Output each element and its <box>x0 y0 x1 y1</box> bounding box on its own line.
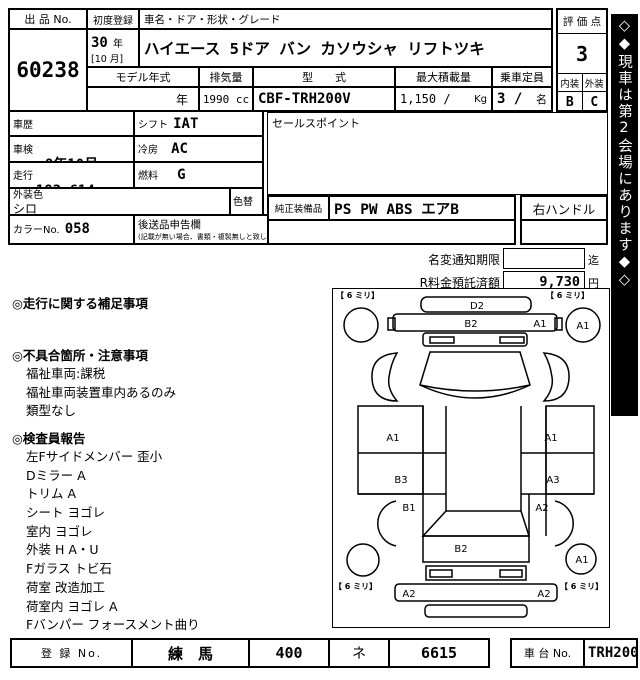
inspector-item: Fバンパー フォースメント曲り <box>26 614 200 633</box>
registration-kana: ネ <box>328 638 390 668</box>
exterior-header: 外装 <box>583 74 607 91</box>
damage-code-left-front-fender: B1 <box>402 503 415 514</box>
front-arch-left <box>378 501 396 546</box>
name-change-deadline-label: 名変通知期限 <box>360 251 500 268</box>
inspector-item: シート ヨゴレ <box>26 502 200 521</box>
fuel-label: 燃料 <box>138 171 158 182</box>
damage-code-rear-bumper-end: A1 <box>533 319 546 330</box>
model-code-value: CBF-TRH200V <box>258 91 351 107</box>
model-code-header: 型 式 <box>252 66 396 88</box>
registration-class: 400 <box>248 638 330 668</box>
tire-tread-front-right: 【 6 ミリ】 <box>560 581 603 591</box>
car-damage-diagram: D2 B2 A1 A1 A1 A1 B3 A3 B1 A2 B2 A2 A2 A… <box>333 289 608 626</box>
shift-label: シフト <box>138 120 168 131</box>
shaken-label: 車検 <box>13 145 33 156</box>
inspector-item: Dミラー A <box>26 465 200 484</box>
tire-tread-rear-left: 【 6 ミリ】 <box>336 290 379 300</box>
color-no-value: 058 <box>65 221 90 237</box>
max-load-header: 最大積載量 <box>394 66 493 88</box>
venue-notice-diamonds-top: ◇◆ <box>617 18 633 54</box>
shift-value: IAT <box>173 116 198 132</box>
inspector-item: 荷室内 ヨゴレ A <box>26 596 200 615</box>
inspector-item: 荷室 改造加工 <box>26 577 200 596</box>
displacement-header: 排気量 <box>198 66 254 88</box>
oem-equipment-empty-cell <box>267 219 516 245</box>
rear-plate-right <box>500 337 524 343</box>
interior-header: 内装 <box>558 74 583 91</box>
ac-value: AC <box>171 141 188 157</box>
defect-item: 福祉車両装置車内あるのみ <box>26 382 176 401</box>
damage-code-rear-bumper: B2 <box>464 319 477 330</box>
notes-section3-title: ◎検査員報告 <box>12 428 85 447</box>
grade-value: 3 <box>576 42 588 66</box>
ac-label: 冷房 <box>138 145 158 156</box>
grade-header: 評 価 点 <box>558 10 606 34</box>
notes-section1-title: ◎走行に関する補足事項 <box>12 293 148 312</box>
capacity-value: 3 / <box>497 91 522 107</box>
defect-item: 類型なし <box>26 400 176 419</box>
left-side-panels <box>358 406 423 494</box>
fuel-value: G <box>177 167 185 183</box>
rear-glass-seam <box>420 385 530 391</box>
rear-quarter-right <box>544 353 569 401</box>
inspector-item: 左Fサイドメンバー 歪小 <box>26 446 200 465</box>
chassis-no-label: 車 台 No. <box>510 638 585 668</box>
damage-diagram-box: D2 B2 A1 A1 A1 A1 B3 A3 B1 A2 B2 A2 A2 A… <box>332 288 610 628</box>
damage-code-left-panel-lower: B3 <box>394 475 407 486</box>
first-registration-header: 初度登録 <box>86 8 140 30</box>
first-registration-year: 30 年 <box>91 32 135 51</box>
oem-equipment-label: 純正装備品 <box>267 195 330 221</box>
damage-code-front-bumper-left: A2 <box>402 589 415 600</box>
color-no-label: カラーNo. <box>13 225 60 236</box>
damage-code-right-front-fender: A2 <box>535 503 548 514</box>
capacity-unit: 名 <box>536 91 547 107</box>
handle-position: 右ハンドル <box>520 195 608 221</box>
exterior-grade: C <box>583 92 607 113</box>
mileage-label: 走行 <box>13 171 33 182</box>
notes-section2-title: ◎不具合箇所・注意事項 <box>12 345 148 364</box>
handle-empty-cell <box>520 219 608 245</box>
venue-notice-banner: ◇◆ 現車は第2会場にあります ◆◇ <box>611 14 638 416</box>
inspector-item: Fガラス トビ石 <box>26 558 200 577</box>
car-name-header: 車名・ドア・形状・グレード <box>138 8 553 30</box>
tire-tread-front-left: 【 6 ミリ】 <box>334 581 377 591</box>
color-change-label: 色替 <box>233 197 253 208</box>
damage-code-right-panel-lower: A3 <box>546 475 559 486</box>
model-year-header: モデル年式 <box>86 66 200 88</box>
tire-tread-rear-right: 【 6 ミリ】 <box>546 290 589 300</box>
registration-no-label: 登 録 No. <box>10 638 133 668</box>
damage-code-front-right-wheel: A1 <box>575 555 588 566</box>
registration-number: 6615 <box>388 638 490 668</box>
first-registration-month: [10 月] <box>91 51 135 65</box>
hood-shape <box>423 536 529 562</box>
rear-quarter-left <box>372 353 397 401</box>
rear-bumper-tab-left <box>388 318 395 330</box>
damage-code-rear-right-wheel: A1 <box>576 321 589 332</box>
chassis-no-value: TRH200-0284646 <box>588 645 640 661</box>
car-name-value: ハイエース 5ドア バン カソウシャ リフトツキ <box>144 37 485 59</box>
grille-plate-left <box>430 570 452 577</box>
damage-code-left-panel-upper: A1 <box>386 433 399 444</box>
model-year-value: 年 <box>86 86 200 112</box>
auction-no-value: 60238 <box>16 58 79 82</box>
damage-code-rear-door: D2 <box>470 301 484 312</box>
grille-bar <box>426 566 526 580</box>
venue-notice-diamonds-bottom: ◆◇ <box>617 254 633 290</box>
inspector-item: 外装 H A・U <box>26 539 200 558</box>
front-lower-bar <box>425 605 527 617</box>
venue-notice-text: 現車は第2会場にあります <box>614 54 635 254</box>
rear-plate-bar <box>423 333 527 346</box>
max-load-unit: Kg <box>474 94 487 105</box>
damage-code-right-panel-upper: A1 <box>544 433 557 444</box>
auction-no-header: 出 品 No. <box>8 8 88 30</box>
rear-plate-left <box>430 337 454 343</box>
damage-code-hood: B2 <box>454 544 467 555</box>
max-load-value: 1,150 / <box>400 92 451 106</box>
name-change-deadline-suffix: 迄 <box>588 252 599 268</box>
registration-area: 練 馬 <box>131 638 250 668</box>
capacity-header: 乗車定員 <box>491 66 553 88</box>
rear-bumper-tab-right <box>555 318 562 330</box>
history-label: 車歴 <box>13 120 33 131</box>
inspector-item: トリム A <box>26 483 200 502</box>
auction-sheet: 出 品 No. 60238 初度登録 30 年 [10 月] 車名・ドア・形状・… <box>0 0 640 680</box>
name-change-deadline-field[interactable] <box>503 248 585 269</box>
oem-equipment-value: PS PW ABS エアB <box>334 198 459 219</box>
displacement-value: 1990 cc <box>198 86 254 112</box>
wheel-circle-front-left <box>347 544 379 576</box>
front-arch-right <box>555 501 573 546</box>
interior-grade: B <box>558 92 583 113</box>
defect-item: 福祉車両:課税 <box>26 363 176 382</box>
sales-point-box: セールスポイント <box>267 112 608 195</box>
grille-plate-right <box>500 570 522 577</box>
damage-code-front-bumper-right: A2 <box>537 589 550 600</box>
inspector-item: 室内 ヨゴレ <box>26 521 200 540</box>
wheel-circle-rear-left <box>344 308 378 342</box>
windshield-shape <box>423 511 529 536</box>
front-bumper-shape <box>395 584 557 601</box>
